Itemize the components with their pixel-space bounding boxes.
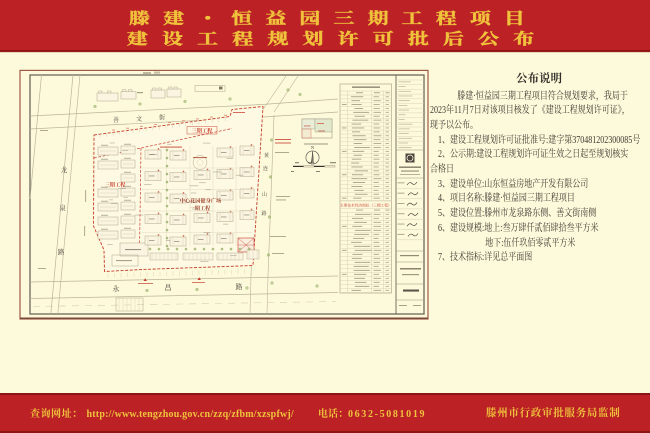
svg-text:路: 路: [58, 247, 65, 256]
svg-text:三期工程: 三期工程: [192, 127, 214, 135]
svg-text:一期工程: 一期工程: [190, 204, 212, 212]
svg-text:黄: 黄: [264, 152, 270, 159]
svg-text:主要技术经济指标（三期工程）: 主要技术经济指标（三期工程）: [340, 203, 392, 208]
svg-text:山: 山: [262, 191, 267, 198]
svg-text:善: 善: [113, 116, 119, 124]
svg-text:文: 文: [136, 115, 142, 123]
svg-text:连: 连: [263, 165, 268, 172]
svg-text:N: N: [311, 145, 314, 150]
svg-text:路: 路: [236, 282, 243, 291]
svg-text:昌: 昌: [165, 283, 172, 292]
svg-text:街: 街: [159, 114, 165, 122]
svg-text:三期工程: 三期工程: [105, 181, 127, 189]
svg-text:路: 路: [261, 210, 266, 217]
svg-text:龙: 龙: [61, 165, 68, 174]
svg-text:泉: 泉: [59, 203, 66, 212]
svg-text:中心花园健身广场: 中心花园健身广场: [180, 197, 222, 205]
svg-text:永: 永: [113, 284, 120, 293]
